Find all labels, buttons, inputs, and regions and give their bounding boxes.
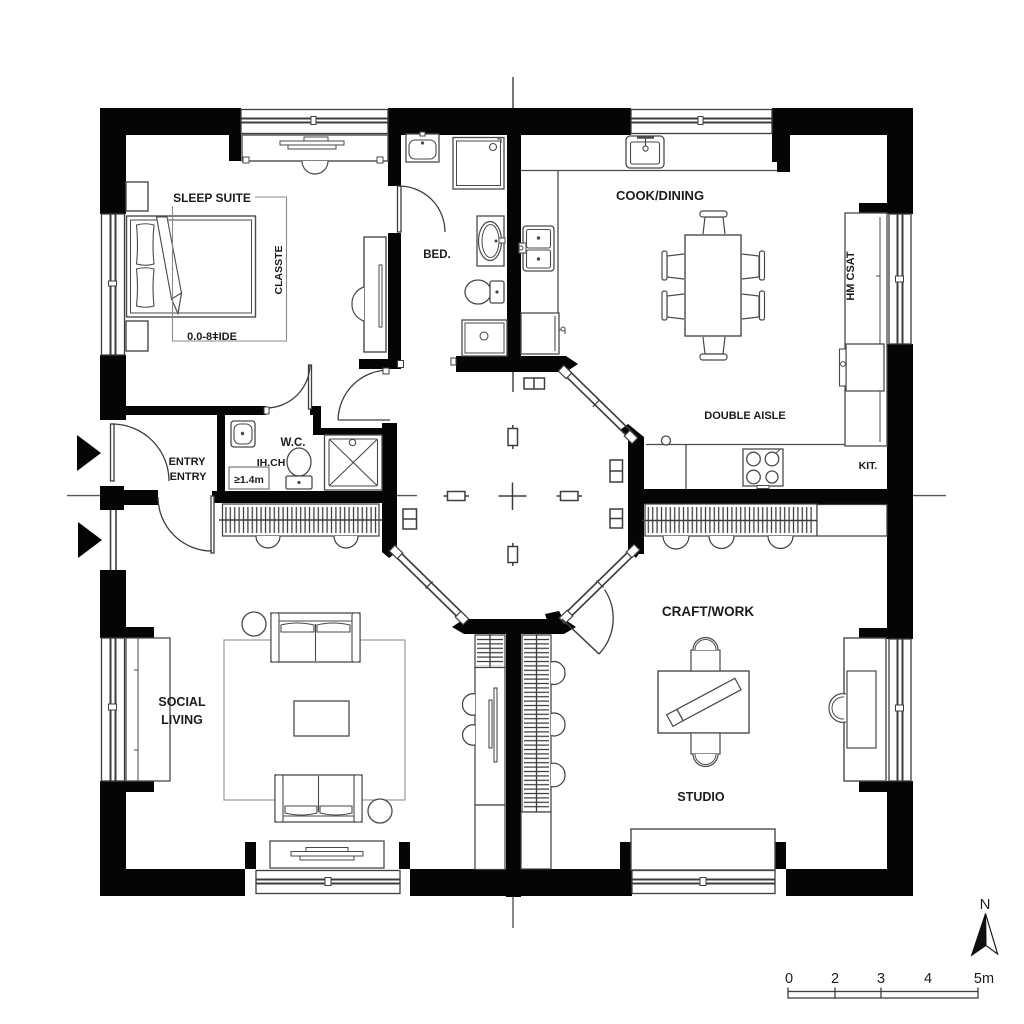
svg-text:W.C.: W.C. [281,437,306,449]
svg-text:ENTRY: ENTRY [170,471,208,483]
svg-text:SOCIAL: SOCIAL [158,695,206,709]
svg-text:CRAFT/WORK: CRAFT/WORK [662,604,754,619]
svg-text:ENTRY: ENTRY [169,456,207,468]
svg-text:KIT.: KIT. [859,460,878,472]
svg-text:N: N [980,896,991,913]
svg-text:0: 0 [785,971,793,987]
svg-text:STUDIO: STUDIO [677,790,725,804]
svg-text:HM CSAT: HM CSAT [845,251,857,301]
svg-text:2: 2 [831,971,839,987]
svg-text:CLASSTE: CLASSTE [273,245,285,294]
svg-text:LIVING: LIVING [161,713,203,727]
svg-text:4: 4 [924,971,932,987]
svg-text:COOK/DINING: COOK/DINING [616,188,704,203]
svg-text:0.0-8ǂIDE: 0.0-8ǂIDE [187,331,237,343]
svg-text:3: 3 [877,971,885,987]
svg-text:≥1.4m: ≥1.4m [234,474,264,486]
svg-text:5m: 5m [974,971,994,987]
svg-text:SLEEP SUITE: SLEEP SUITE [173,191,251,205]
svg-text:DOUBLE AISLE: DOUBLE AISLE [704,410,786,422]
svg-text:IH.CH: IH.CH [257,457,286,469]
svg-text:BED.: BED. [423,249,450,261]
